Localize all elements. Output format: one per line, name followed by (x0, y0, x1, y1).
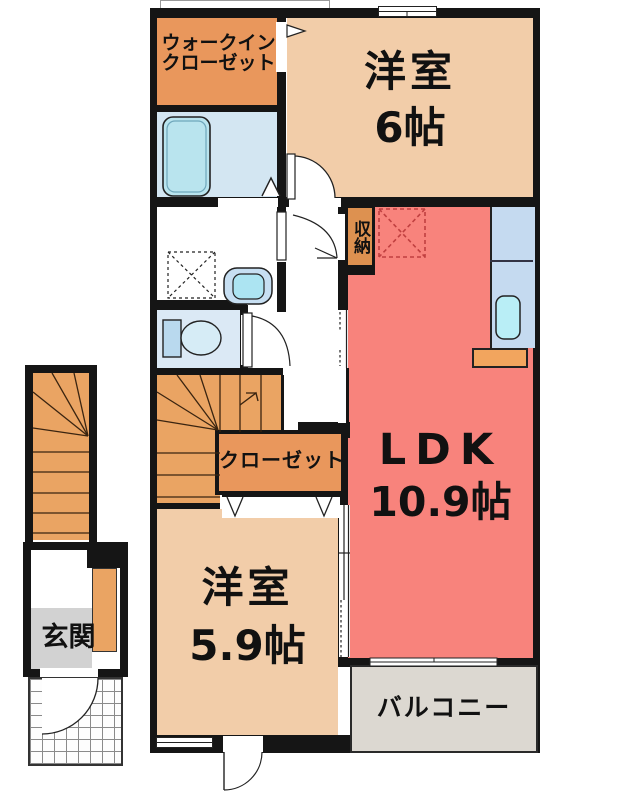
wall-stairs-bottom (157, 503, 220, 509)
wic-label: ウォークイン クローゼット (157, 34, 280, 74)
entrance-porch-tiles (28, 677, 123, 766)
storage-opening (338, 214, 345, 260)
entrance-inner-wall (87, 542, 128, 568)
stairs-left-column (157, 432, 220, 503)
bedroom6-size: 6帖 (287, 106, 533, 150)
kitchen-counter-area (490, 207, 535, 348)
kitchen-divider (490, 260, 533, 262)
room-toilet (157, 310, 240, 368)
wic-label-line2: クローゼット (157, 54, 280, 74)
washroom-door-gap (276, 212, 286, 262)
toilet-door-gap (241, 315, 248, 365)
balcony-label: バルコニー (350, 695, 538, 721)
bedroom59-window (156, 737, 213, 748)
counter-cabinet (472, 348, 528, 368)
floor-plan: ウォークイン クローゼット 洋室 6帖 収納 LDK 10.9帖 クローゼット … (0, 0, 643, 795)
wall-stairs-corridor (281, 375, 284, 432)
room-bathroom (157, 112, 277, 197)
ldk-wall-thin-section (338, 368, 346, 423)
wall-toilet-bottom (157, 368, 283, 375)
closet-label: クローゼット (219, 450, 341, 471)
storage-label: 収納 (347, 211, 373, 263)
wall-washroom-toilet (157, 300, 247, 310)
wall-wic-bottom (157, 105, 277, 112)
ldk-wall-thin-line (346, 368, 349, 423)
bedroom6-window (378, 6, 437, 17)
bath-door-gap (218, 198, 278, 207)
wic-label-line1: ウォークイン (157, 34, 280, 54)
ext-stairs-steps (33, 373, 89, 540)
bedroom59-exterior-door (224, 752, 262, 790)
wall-storage-bottom (342, 266, 375, 275)
ldk-size: 10.9帖 (348, 481, 533, 524)
bedroom6-name: 洋室 (287, 50, 533, 94)
bedroom59-door-gap (223, 736, 263, 752)
bedroom59-size: 5.9帖 (157, 624, 338, 668)
entrance-label: 玄関 (31, 624, 106, 652)
ldk-sliding-door (338, 310, 348, 368)
closet-bifold-doors (222, 495, 340, 518)
bedroom59-name: 洋室 (157, 566, 338, 610)
bedroom59-sliding-door (339, 505, 350, 657)
stairs-upper (157, 375, 283, 432)
ldk-name: LDK (348, 428, 533, 473)
bedroom6-door-gap (289, 198, 341, 207)
